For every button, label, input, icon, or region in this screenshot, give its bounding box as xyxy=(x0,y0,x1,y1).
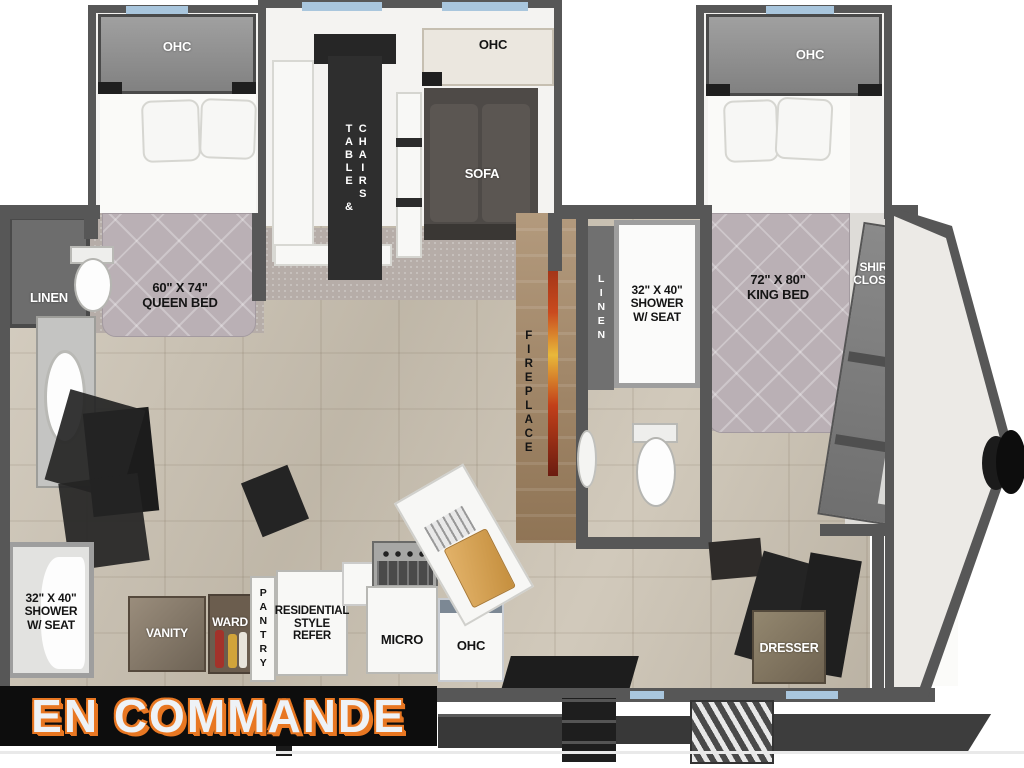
entry-mat xyxy=(501,656,639,690)
chair-back xyxy=(396,138,422,147)
cabinet-bracket xyxy=(706,84,730,96)
dinette-bench xyxy=(272,60,314,262)
dinette-table: TABLE & CHAIRS xyxy=(328,56,382,280)
window-strip xyxy=(766,6,834,14)
vanity-label: VANITY xyxy=(132,622,202,646)
bed-bench xyxy=(708,538,763,580)
king-bed-label: 72" X 80" KING BED xyxy=(722,262,834,314)
hanging-clothes-yellow xyxy=(228,634,237,668)
kitchen-ohc-label: OHC xyxy=(442,634,500,658)
bath-sink xyxy=(577,430,597,488)
micro-label: MICRO xyxy=(372,628,432,652)
wall-stub xyxy=(548,213,562,271)
window-strip xyxy=(126,6,188,14)
mid-shower-label: 32" X 40" SHOWER W/ SEAT xyxy=(620,258,694,350)
folding-steps xyxy=(690,700,774,764)
pillow xyxy=(199,98,257,160)
hanging-clothes-red xyxy=(215,630,224,668)
queen-bed-label: 60" X 74" QUEEN BED xyxy=(120,270,240,322)
fireplace-label: FIREPLACE xyxy=(522,330,534,456)
linen-rear-label: LINEN xyxy=(30,291,68,306)
hitch xyxy=(982,430,1024,496)
undercarriage-band xyxy=(774,714,1010,752)
bath-wall xyxy=(576,213,588,549)
sofa-cushion xyxy=(482,104,530,222)
pantry-label: PANTRY xyxy=(258,587,269,671)
window-strip xyxy=(302,2,382,11)
cabinet-bracket xyxy=(232,82,256,94)
sofa-cushion xyxy=(430,104,478,222)
wall-stub xyxy=(252,213,266,301)
hitch-cone xyxy=(996,430,1024,494)
king-mattress xyxy=(708,213,850,433)
cabinet-bracket xyxy=(858,84,882,96)
rear-shower-label: 32" X 40" SHOWER W/ SEAT xyxy=(14,570,88,654)
pillow xyxy=(723,99,779,163)
ohc-label-left: OHC xyxy=(122,36,232,58)
status-banner: EN COMMANDE xyxy=(0,686,437,746)
table-chairs-label: TABLE & CHAIRS xyxy=(341,123,369,214)
wardrobe-cabinet xyxy=(208,594,252,674)
toilet-bowl xyxy=(74,258,112,312)
top-wall xyxy=(558,205,712,219)
hanging-clothes-white xyxy=(239,632,247,668)
rear-wall xyxy=(0,205,10,702)
bath-wall xyxy=(576,537,712,549)
dinette-chairs xyxy=(396,92,422,258)
page-divider-line xyxy=(0,751,1024,754)
pillow xyxy=(774,97,833,162)
pillow xyxy=(141,99,201,163)
status-banner-text: EN COMMANDE xyxy=(31,689,406,743)
undercarriage-band xyxy=(616,716,692,744)
stove-grate xyxy=(377,561,433,585)
sofa-label: SOFA xyxy=(452,164,512,184)
mid-toilet xyxy=(630,423,682,511)
ohc-label-front: OHC xyxy=(760,44,860,66)
cabinet-bracket xyxy=(98,82,122,94)
undercarriage-band xyxy=(438,714,562,748)
window-strip xyxy=(786,691,838,699)
wd-wall xyxy=(872,524,884,694)
pantry-cabinet: PANTRY xyxy=(250,576,276,682)
bath-wall xyxy=(700,213,712,549)
fireplace-label-wrap: FIREPLACE xyxy=(518,300,538,485)
mid-linen-cabinet: LINEN xyxy=(588,226,614,390)
ward-label: WARD xyxy=(208,612,252,634)
linen-mid-label: LINEN xyxy=(596,273,607,343)
window-strip xyxy=(630,691,664,699)
floorplan-image: OHC 60" X 74" QUEEN BED TABLE & CHAIRS O… xyxy=(0,0,1024,768)
chair-back xyxy=(396,198,422,207)
ohc-label-living: OHC xyxy=(448,34,538,56)
dresser-label: DRESSER xyxy=(754,636,824,660)
refer-label: RESIDENTIAL STYLE REFER xyxy=(278,586,346,662)
toilet-bowl xyxy=(636,437,676,507)
rear-toilet xyxy=(70,246,116,314)
cabinet-bracket xyxy=(422,72,442,86)
window-strip xyxy=(442,2,528,11)
wall-stub xyxy=(84,213,98,239)
